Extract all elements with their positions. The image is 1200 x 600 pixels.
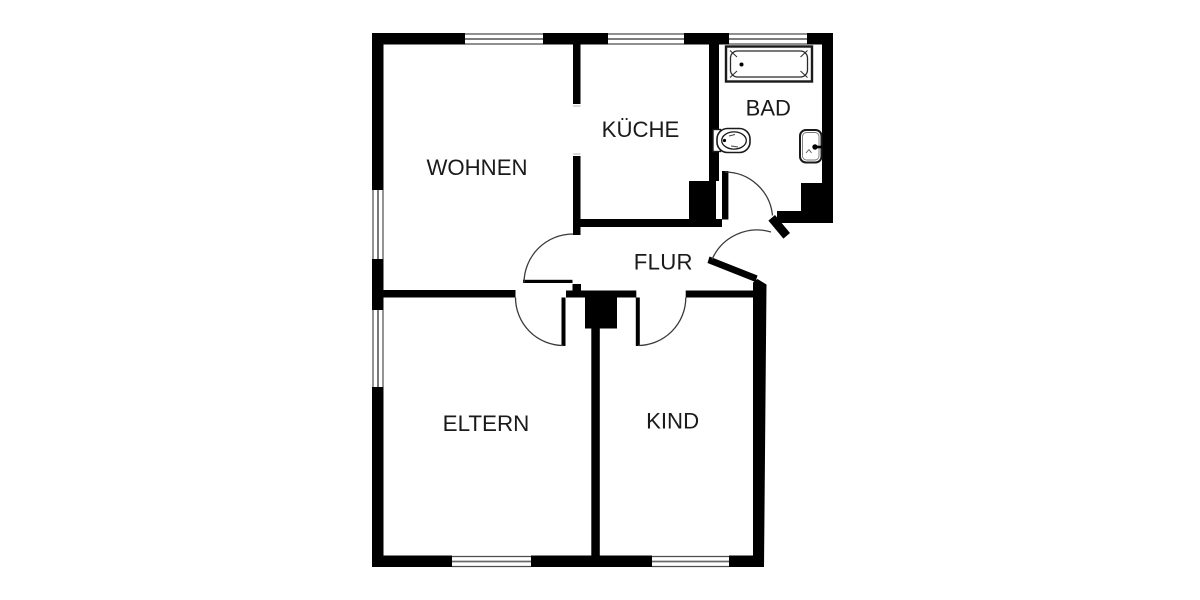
svg-text:KIND: KIND (646, 409, 699, 434)
svg-text:FLUR: FLUR (634, 250, 693, 275)
svg-text:WOHNEN: WOHNEN (426, 155, 527, 180)
svg-text:KÜCHE: KÜCHE (602, 117, 680, 142)
svg-text:BAD: BAD (746, 96, 791, 121)
svg-text:ELTERN: ELTERN (443, 411, 530, 436)
